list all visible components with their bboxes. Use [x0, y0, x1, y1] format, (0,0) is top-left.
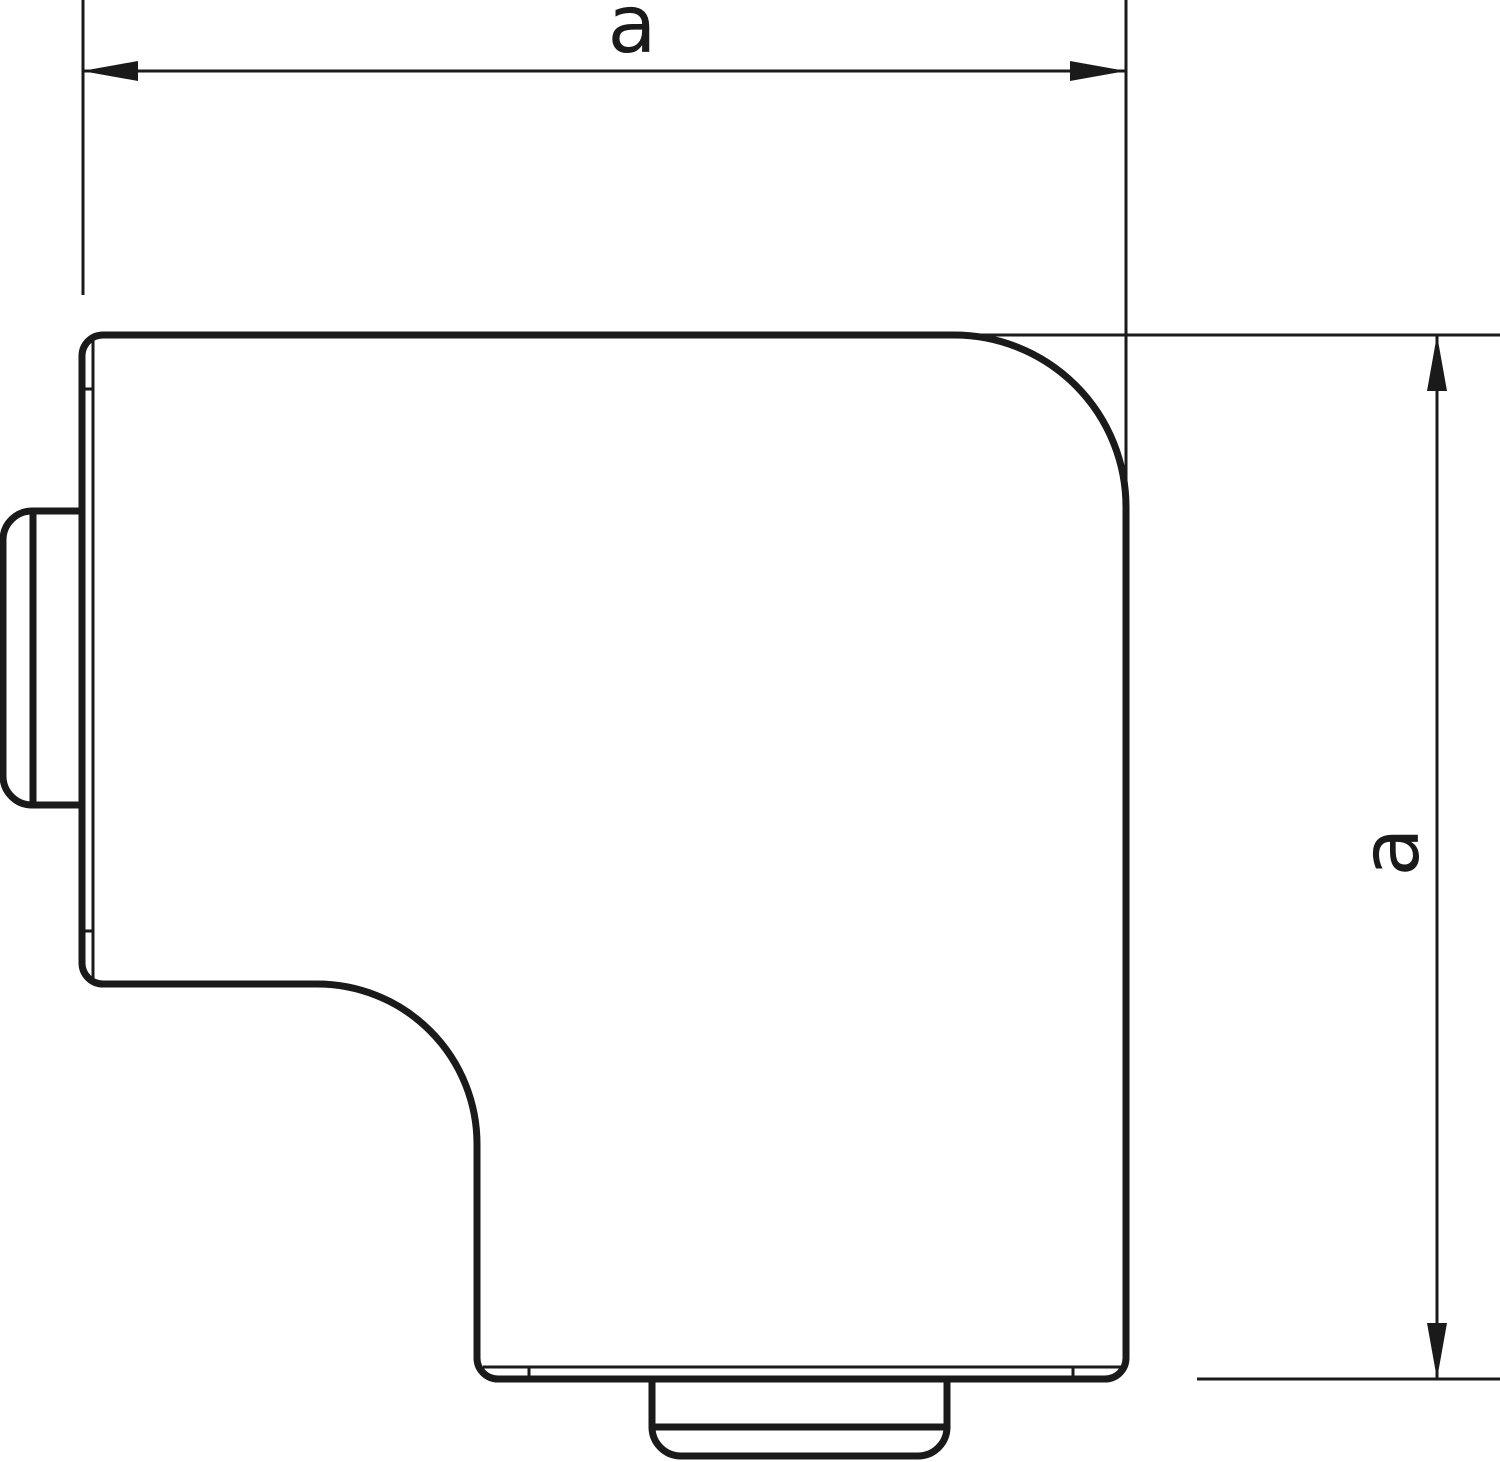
dimension-horizontal-lines: [83, 0, 1126, 487]
left-connector-outline: [3, 511, 82, 805]
arrowhead-down-icon: [1427, 1323, 1447, 1379]
arrowhead-right-icon: [1070, 61, 1126, 81]
part-geometry: [3, 335, 1126, 1456]
dimension-label-horizontal: a: [607, 0, 656, 71]
dimension-horizontal: a: [82, 0, 1126, 487]
arrowhead-left-icon: [82, 61, 138, 81]
drawing-canvas: a a: [0, 0, 1500, 1462]
bottom-connector-outline: [652, 1379, 947, 1456]
part-edge-details: [82, 338, 1121, 1378]
part-body-outline: [82, 335, 1126, 1379]
flat-angle-cover-drawing: a a: [0, 0, 1500, 1462]
dimension-vertical: a: [954, 335, 1500, 1379]
arrowhead-up-icon: [1427, 335, 1447, 391]
dimension-label-vertical: a: [1344, 827, 1437, 876]
